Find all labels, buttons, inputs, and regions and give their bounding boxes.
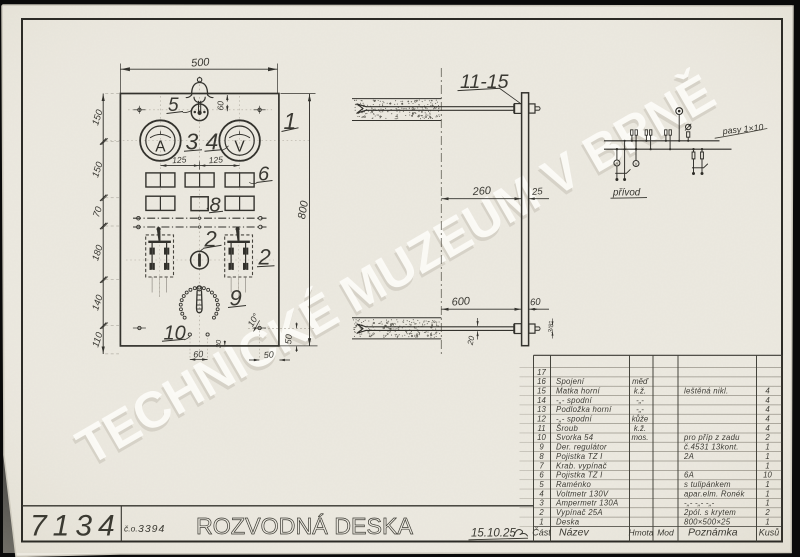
svg-text:č.4531 13kont.: č.4531 13kont. (684, 443, 739, 452)
svg-text:4: 4 (765, 386, 770, 395)
svg-text:3394: 3394 (138, 523, 165, 535)
svg-text:Voltmetr 130V: Voltmetr 130V (556, 489, 609, 498)
svg-text:7: 7 (539, 461, 544, 470)
svg-text:10: 10 (537, 433, 546, 442)
svg-text:s tulipánkem: s tulipánkem (684, 480, 731, 489)
svg-text:2: 2 (538, 508, 544, 517)
svg-text:mos.: mos. (632, 433, 649, 442)
svg-text:-„- spodní: -„- spodní (556, 396, 592, 405)
svg-text:125: 125 (172, 154, 187, 165)
svg-text:Pojistka TZ I: Pojistka TZ I (556, 452, 603, 461)
svg-text:2A: 2A (683, 452, 694, 461)
svg-text:4: 4 (765, 415, 770, 424)
svg-text:6: 6 (539, 471, 544, 480)
svg-text:15: 15 (537, 386, 546, 395)
svg-text:9: 9 (539, 443, 544, 452)
svg-text:500: 500 (191, 56, 211, 69)
svg-text:k.ž.: k.ž. (634, 386, 646, 395)
svg-text:12: 12 (537, 415, 546, 424)
svg-text:1: 1 (765, 443, 769, 452)
svg-text:4: 4 (765, 405, 770, 414)
svg-text:7134: 7134 (30, 510, 121, 543)
svg-text:50: 50 (263, 349, 274, 360)
svg-text:30: 30 (214, 339, 223, 348)
svg-text:16: 16 (537, 377, 546, 386)
svg-text:Mod: Mod (657, 528, 674, 538)
svg-text:měď: měď (632, 377, 649, 386)
svg-text:Matka horní: Matka horní (556, 386, 601, 395)
svg-text:ROZVODNÁ DESKA: ROZVODNÁ DESKA (196, 513, 413, 539)
svg-text:2: 2 (764, 508, 770, 517)
svg-text:4: 4 (765, 424, 770, 433)
svg-text:leštěná nikl.: leštěná nikl. (684, 386, 728, 395)
svg-text:Raménko: Raménko (556, 480, 592, 489)
svg-text:3: 3 (539, 499, 544, 508)
svg-text:1: 1 (539, 517, 543, 526)
svg-text:4: 4 (765, 396, 770, 405)
svg-text:600: 600 (451, 295, 471, 308)
svg-text:Poznámka: Poznámka (688, 527, 738, 539)
svg-text:15.10.25: 15.10.25 (471, 528, 516, 540)
svg-text:Deska: Deska (556, 517, 580, 526)
svg-text:pro příp z zadu: pro příp z zadu (683, 433, 740, 442)
svg-text:4: 4 (539, 489, 544, 498)
svg-text:1: 1 (765, 461, 769, 470)
svg-text:kůže: kůže (632, 415, 649, 424)
svg-text:A: A (155, 139, 166, 156)
svg-text:-„- spodní: -„- spodní (556, 415, 592, 424)
svg-text:50: 50 (283, 334, 294, 345)
svg-text:Šroub: Šroub (556, 424, 578, 433)
svg-text:Svorka 54: Svorka 54 (556, 433, 594, 442)
svg-text:-„-: -„- (636, 396, 644, 405)
svg-text:Název: Název (559, 527, 590, 539)
svg-text:č.o.: č.o. (124, 524, 138, 534)
svg-text:apar.elm. Ronék: apar.elm. Ronék (684, 489, 746, 498)
svg-text:Část: Část (532, 528, 551, 538)
svg-text:1: 1 (765, 452, 769, 461)
svg-text:8: 8 (210, 195, 221, 217)
svg-text:8: 8 (539, 452, 544, 461)
svg-text:V: V (234, 139, 245, 156)
svg-text:k.ž.: k.ž. (634, 424, 646, 433)
svg-text:800×500×25: 800×500×25 (684, 517, 731, 526)
svg-text:A: A (616, 161, 619, 166)
svg-text:3/8": 3/8" (548, 321, 556, 334)
svg-text:11: 11 (537, 424, 545, 433)
svg-text:60: 60 (530, 297, 542, 309)
svg-text:5: 5 (539, 480, 544, 489)
svg-text:17: 17 (537, 368, 546, 377)
svg-text:Spojení: Spojení (556, 377, 585, 386)
svg-text:Kusů: Kusů (759, 528, 780, 538)
svg-text:1: 1 (765, 517, 769, 526)
svg-text:přívod: přívod (612, 188, 641, 199)
svg-text:2: 2 (764, 433, 770, 442)
svg-text:10: 10 (763, 471, 772, 480)
svg-text:-„- -„- -„-: -„- -„- -„- (684, 499, 715, 508)
svg-text:Podložka horní: Podložka horní (556, 405, 612, 414)
svg-text:13: 13 (537, 405, 546, 414)
svg-text:Der. regulátor: Der. regulátor (556, 443, 607, 452)
svg-text:Pojistka TZ I: Pojistka TZ I (556, 471, 603, 480)
svg-text:2pól. s krytem: 2pól. s krytem (683, 508, 736, 517)
svg-text:Vypínač 25A: Vypínač 25A (556, 508, 603, 517)
svg-text:6A: 6A (684, 471, 694, 480)
svg-text:Ampermetr 130A: Ampermetr 130A (555, 499, 618, 508)
svg-text:-„-: -„- (636, 405, 644, 414)
svg-text:60: 60 (216, 101, 226, 111)
svg-text:60: 60 (193, 349, 204, 360)
svg-text:1: 1 (765, 499, 769, 508)
svg-text:Krab. vypínač: Krab. vypínač (556, 461, 607, 470)
svg-text:260: 260 (471, 185, 492, 198)
svg-text:125: 125 (208, 154, 223, 165)
svg-text:14: 14 (537, 396, 546, 405)
svg-text:25: 25 (531, 186, 544, 198)
svg-text:Hmota: Hmota (628, 528, 653, 538)
svg-text:V: V (635, 161, 638, 166)
svg-text:1: 1 (765, 480, 769, 489)
svg-text:1: 1 (765, 489, 769, 498)
